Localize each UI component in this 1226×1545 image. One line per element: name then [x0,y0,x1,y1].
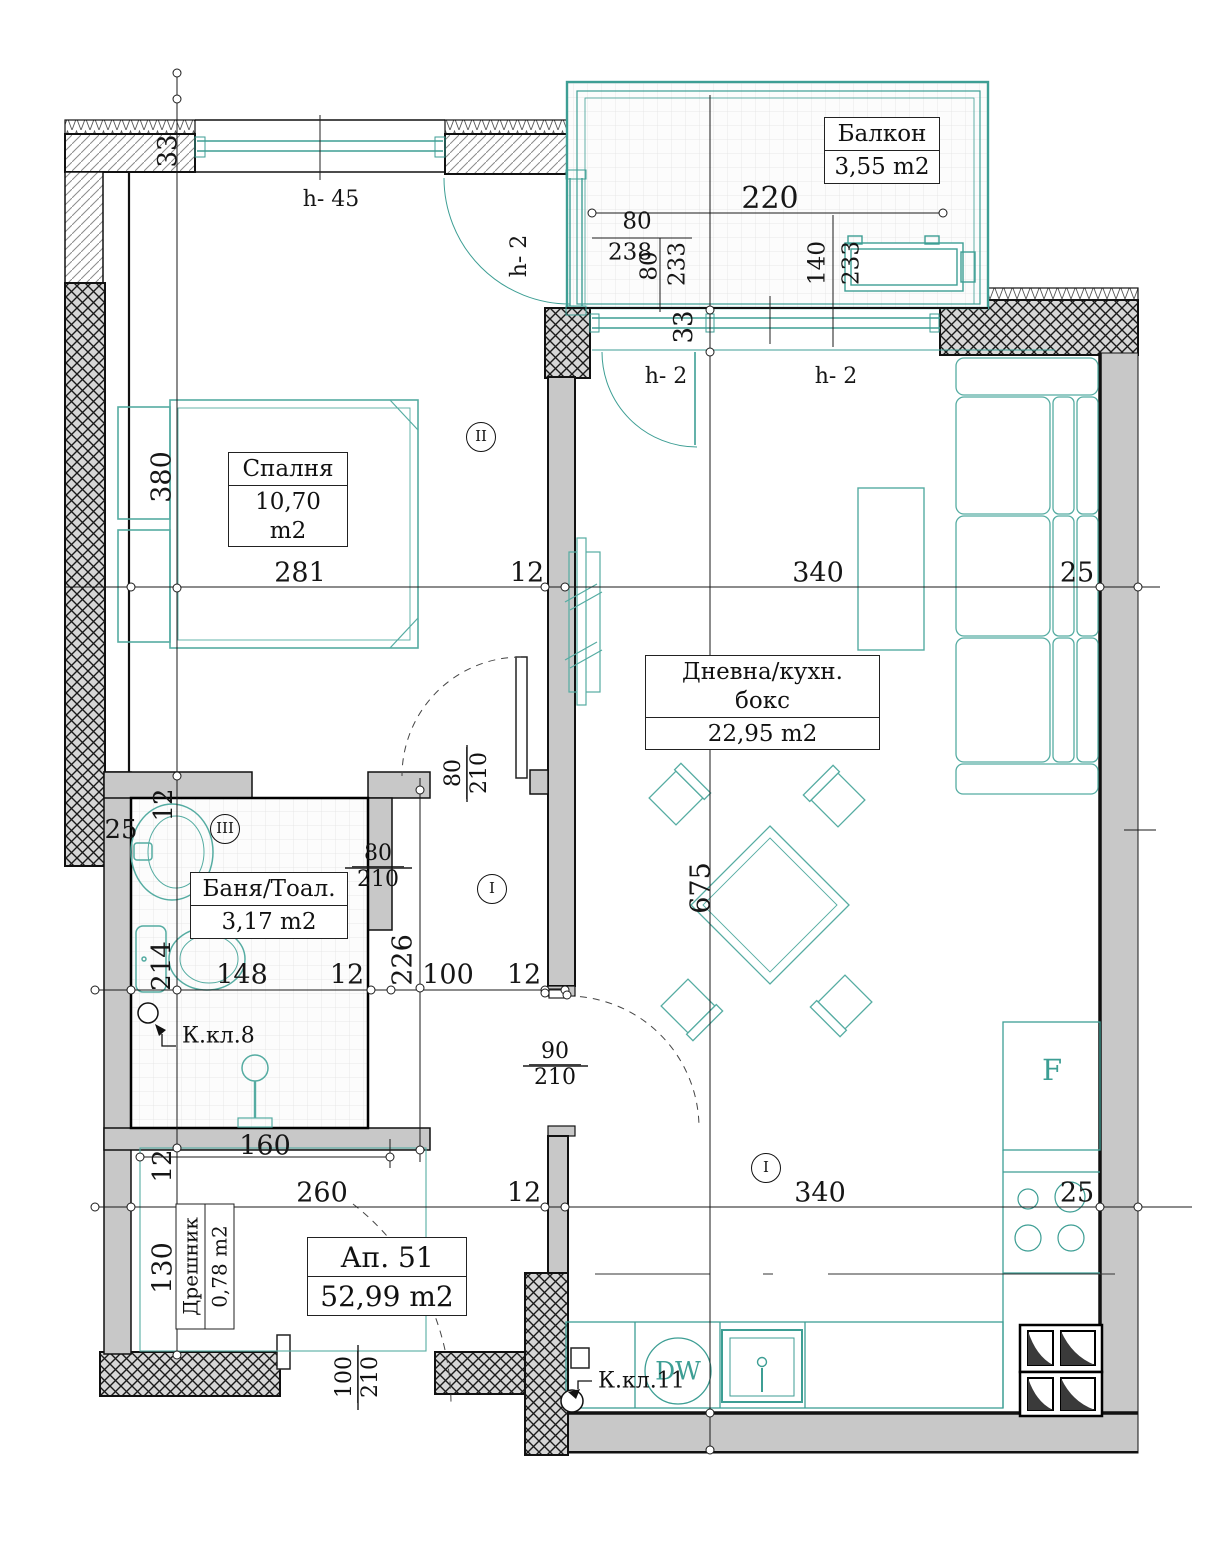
apartment-label: Ап. 51 52,99 m2 [307,1237,467,1316]
chair [803,765,866,828]
dim-label-25: 25 [1060,1180,1094,1207]
floor-plan: Балкон 3,55 m2 Спалня 10,70 m2 Дневна/ку… [0,0,1226,1545]
room-name: Дневна/кухн. бокс [646,656,879,718]
zone-marker-II: II [466,422,496,452]
room-label-closet: Дрешник 0,78 m2 [176,1204,235,1330]
room-label-bathroom: Баня/Тоал. 3,17 m2 [190,872,348,939]
dim-label-33: 33 [671,310,697,343]
door-height: 210 [529,1066,581,1091]
door-size-bedroom: 80 210 [441,747,493,799]
apartment-number: Ап. 51 [308,1238,466,1277]
dim-label-100: 100 [422,962,474,989]
dim-label-675: 675 [688,862,715,914]
zone-marker-III: III [210,814,240,844]
zone-marker-I: I [477,874,507,904]
coffee-table [858,488,924,650]
room-name: Балкон [825,118,939,151]
door-height: 210 [359,1351,384,1403]
dim-label-h-2: h- 2 [815,366,858,388]
dim-label-25: 25 [1060,560,1094,587]
door-height: 210 [352,868,404,893]
room-area: 0,78 m2 [206,1205,234,1329]
chair [810,974,873,1037]
room-label-balcony: Балкон 3,55 m2 [824,117,940,184]
room-label-living: Дневна/кухн. бокс 22,95 m2 [645,655,880,750]
dim-label-233: 233 [841,241,864,285]
nightstand [118,530,170,642]
chair [660,978,723,1041]
door-width: 80 [352,841,404,867]
ac-unit [845,236,975,291]
dim-label-80: 80 [639,251,662,280]
dim-label-160: 160 [239,1133,291,1160]
room-area: 22,95 m2 [646,718,879,750]
dim-label-33: 33 [155,134,181,167]
dim-label-226: 226 [390,934,417,986]
chair [648,763,711,826]
dim-label-h-45: h- 45 [303,189,360,211]
room-name: Баня/Тоал. [191,873,347,906]
dim-label-130: 130 [150,1242,177,1294]
door-size-bathroom: 80 210 [352,841,404,893]
room-area: 3,17 m2 [191,906,347,938]
room-name: Дрешник [177,1205,206,1329]
dim-label-12: 12 [330,962,364,989]
dim-label-80: 80 [622,211,651,234]
dim-label-12: 12 [150,1149,176,1182]
zone-marker-I2: I [751,1153,781,1183]
dim-label-281: 281 [274,560,326,587]
door-size-living: 90 210 [529,1039,581,1091]
bedroom-window [195,115,445,180]
dim-label-380: 380 [149,451,176,503]
dim-label-260: 260 [296,1180,348,1207]
shaft-symbol [1020,1325,1102,1416]
door-width: 100 [332,1351,358,1403]
room-name: Спалня [229,453,347,486]
dim-label-214: 214 [149,941,175,991]
fridge-label: F [1042,1053,1062,1087]
room-label-bedroom: Спалня 10,70 m2 [228,452,348,547]
dim-label-25: 25 [104,817,137,843]
dim-label-12: 12 [507,962,541,989]
dim-label-12: 12 [507,1180,541,1207]
door-width: 90 [529,1039,581,1065]
door-height: 210 [468,747,493,799]
dim-label-340: 340 [792,560,844,587]
dim-label-140: 140 [807,241,830,285]
kitchen-sink [722,1330,802,1402]
dim-label-12: 12 [510,560,544,587]
dim-label-h-2: h- 2 [509,235,531,278]
door-width: 80 [441,747,467,799]
room-area: 3,55 m2 [825,151,939,183]
room-area: 10,70 m2 [229,486,347,547]
dim-label-220: 220 [741,184,798,214]
dim-label-12: 12 [151,788,177,821]
dim-label-233: 233 [667,242,690,286]
dim-label-148: 148 [216,962,268,989]
k8-circle [138,1003,158,1023]
key-label-8: К.кл.8 [182,1024,255,1049]
dining-set [648,763,874,1040]
dim-label-h-2: h- 2 [645,366,688,388]
apartment-area: 52,99 m2 [308,1277,466,1315]
door-size-entrance: 100 210 [332,1351,384,1403]
key-label-11: К.кл.11 [598,1369,685,1394]
dim-label-340: 340 [794,1180,846,1207]
